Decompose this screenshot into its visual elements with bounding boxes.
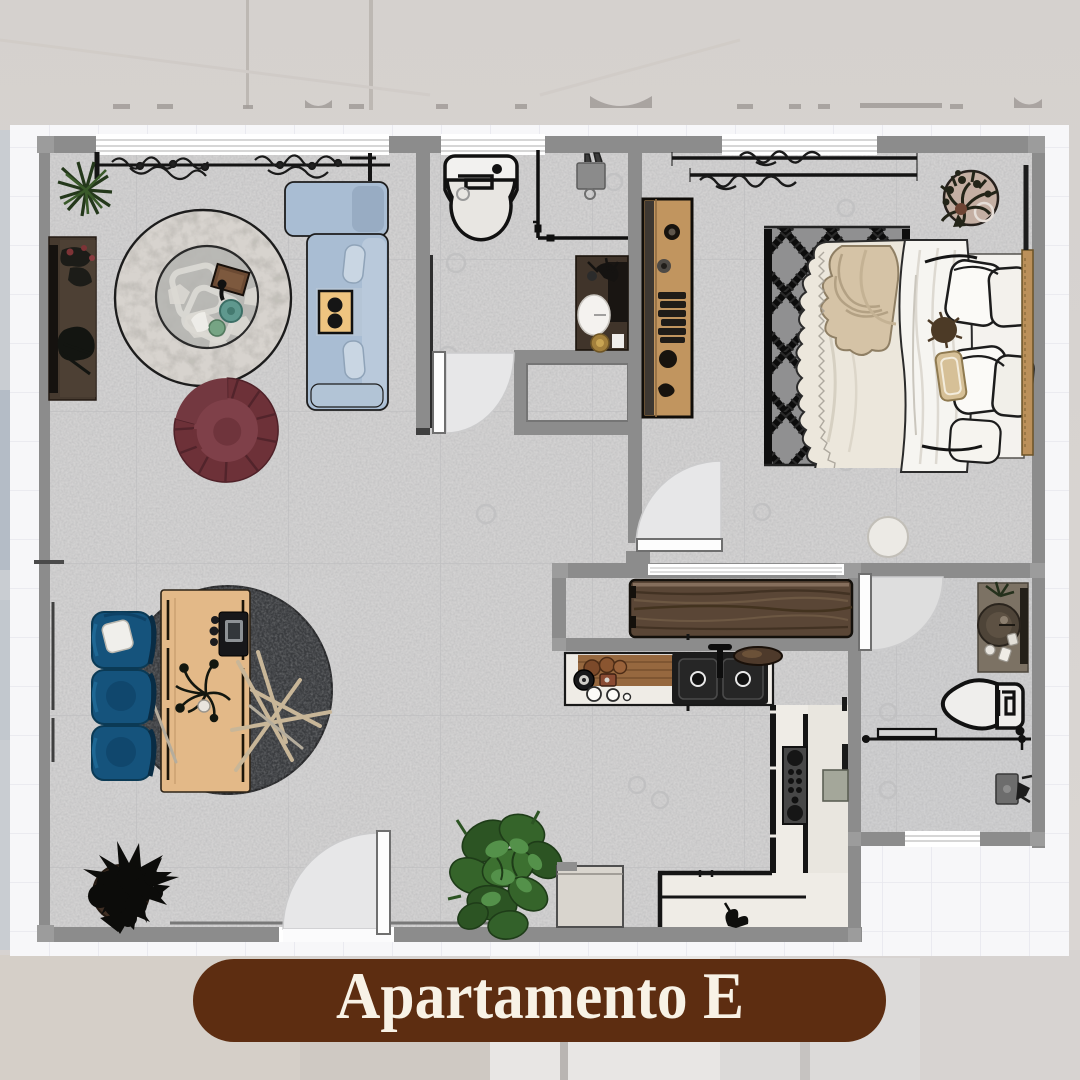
- svg-text:Apartamento E: Apartamento E: [336, 959, 744, 1033]
